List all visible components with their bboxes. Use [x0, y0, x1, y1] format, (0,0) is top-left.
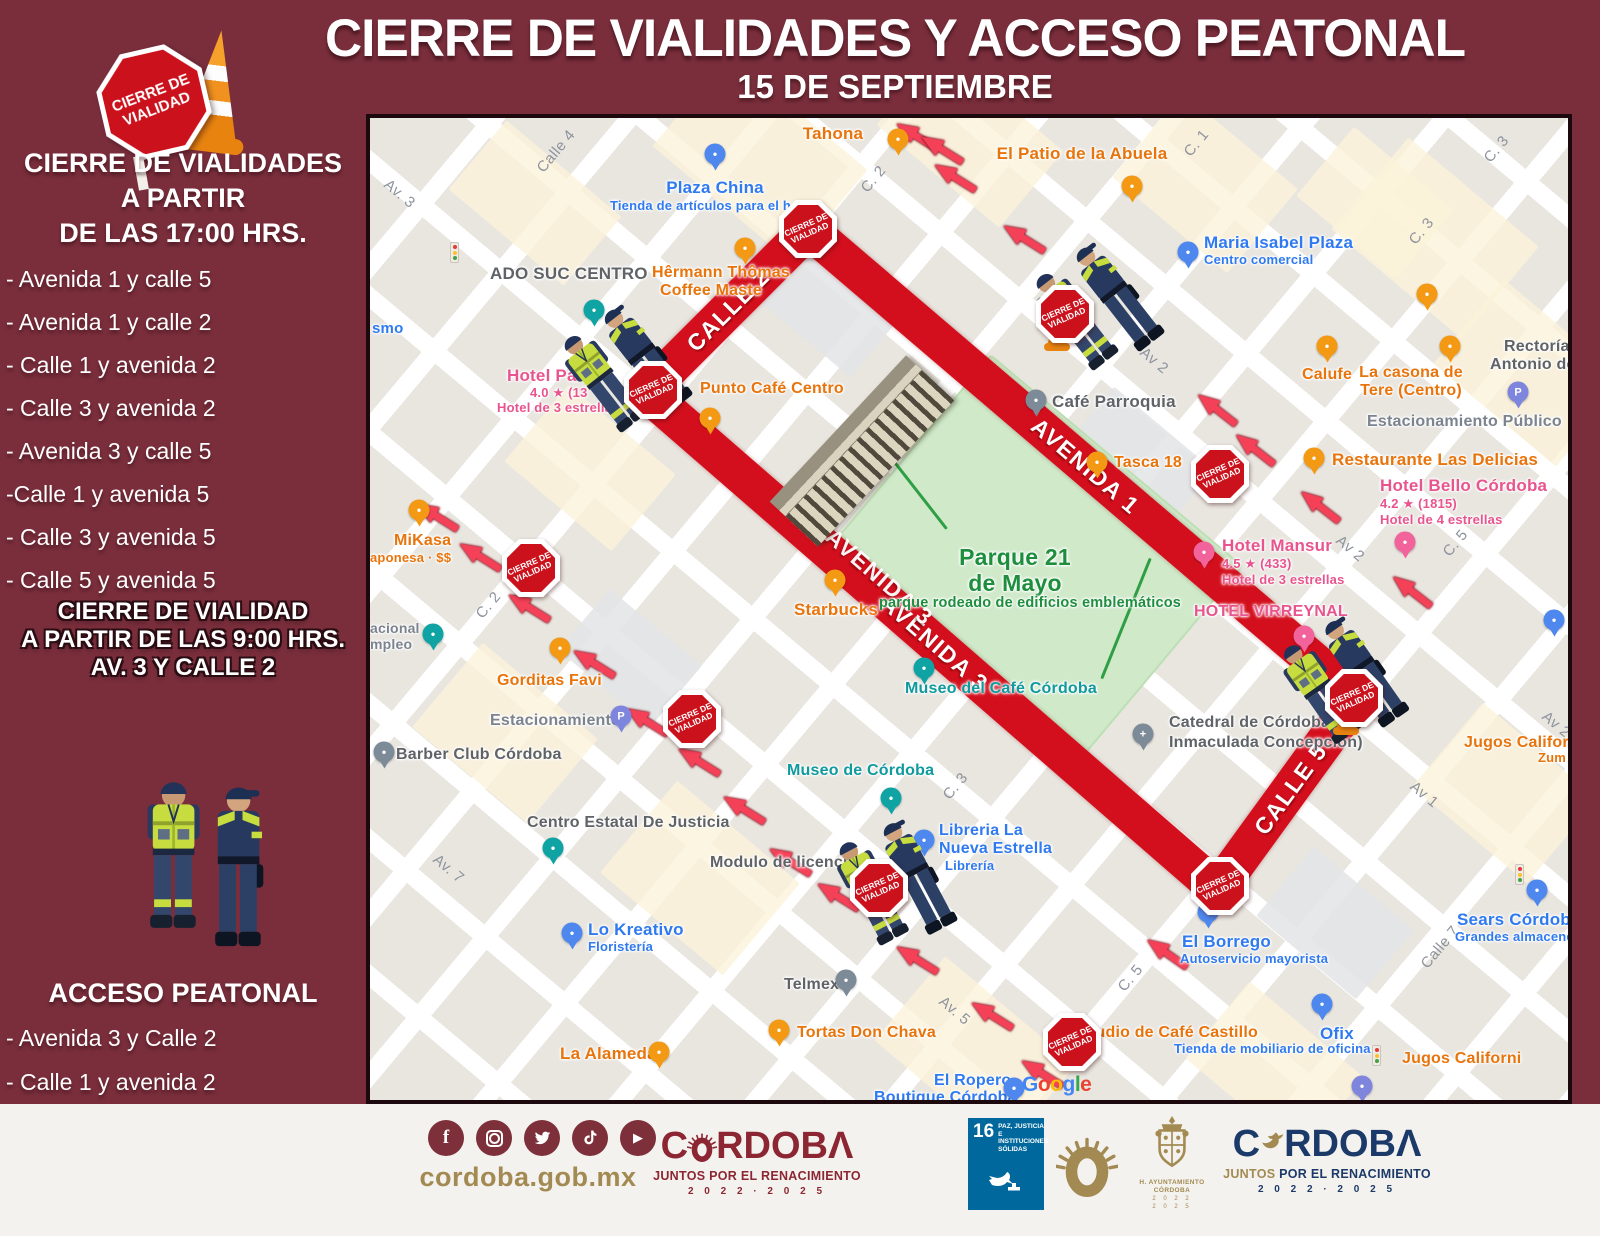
poi-label: Hotel de 3 estrellas [1222, 572, 1345, 587]
poi-label: El Borrego [1182, 932, 1271, 952]
direction-arrow-icon [1295, 484, 1345, 529]
traffic-light-icon [1515, 864, 1524, 885]
poi-label: El Ropero [934, 1072, 1011, 1090]
pedestrian-street-item: - Avenida 3 y Calle 2 [6, 1016, 360, 1060]
map-pin: ● [888, 129, 909, 150]
poi-label: Centro comercial [1204, 252, 1313, 267]
road-closure-sign: CIERRE DE VIALIDAD [663, 690, 721, 748]
poi-label: MiKasa [394, 532, 451, 550]
pin-glyph: ● [1352, 1076, 1373, 1097]
poi-label: Plaza China [666, 178, 764, 198]
road-closure-sign: CIERRE DE VIALIDAD [502, 539, 560, 597]
years: 2 0 2 2 · 2 0 2 5 [652, 1186, 862, 1197]
pin-glyph: ● [1087, 452, 1108, 473]
map-pin: ● [649, 1042, 670, 1063]
poi-label: Telmex [784, 976, 839, 994]
poi-label: Museo de Córdoba [787, 762, 934, 780]
road-closure-sign: CIERRE DE VIALIDAD [1043, 1013, 1101, 1071]
poi-label: Coffee Maste [660, 282, 762, 300]
closure-street-item: - Avenida 1 y calle 2 [6, 301, 360, 344]
pin-glyph: P [611, 706, 632, 727]
poi-label: Calufe [1302, 366, 1352, 384]
pin-glyph: ● [705, 144, 726, 165]
map-pin: P [1508, 382, 1529, 403]
map-pin: ● [562, 923, 583, 944]
map-pin: ● [769, 1020, 790, 1041]
poi-label: Rectoría d [1504, 338, 1572, 356]
poi-label: El Patio de la Abuela [997, 144, 1168, 164]
pin-glyph: + [1133, 724, 1154, 745]
sdg16-logo: 16 PAZ, JUSTICIAE INSTITUCIONESSÓLIDAS [968, 1118, 1044, 1210]
park-label: de Mayo [968, 570, 1061, 597]
facebook-icon[interactable]: f [428, 1120, 464, 1156]
sun-emblem [1056, 1116, 1118, 1212]
poi-label: acional [370, 620, 420, 636]
street-name-label: C. 2 [472, 588, 504, 622]
street-name-label: Av. 3 [381, 176, 419, 212]
road-closure-sign: CIERRE DE VIALIDAD [624, 361, 682, 419]
map-pin: ● [1178, 242, 1199, 263]
map-pin: ● [409, 500, 430, 521]
pin-glyph: ● [562, 923, 583, 944]
poi-label: Antonio de [1490, 356, 1572, 374]
cordoba-logo-maroon: CRDOBΛ JUNTOS POR EL RENACIMIENTO 2 0 2 … [652, 1126, 862, 1197]
dove-gavel-icon [985, 1159, 1027, 1199]
pin-glyph: ● [1417, 284, 1438, 305]
instagram-icon[interactable] [476, 1120, 512, 1156]
pin-glyph: ● [836, 970, 857, 991]
pin-glyph: ● [1026, 390, 1047, 411]
map-pin: ● [1304, 448, 1325, 469]
pin-glyph: ● [649, 1042, 670, 1063]
map-pin: ● [1312, 994, 1333, 1015]
map-pin: ● [1122, 176, 1143, 197]
tagline: JUNTOS POR EL RENACIMIENTO [652, 1169, 862, 1183]
direction-arrow-icon [999, 218, 1050, 260]
map-pin: ● [705, 144, 726, 165]
pin-glyph: ● [423, 624, 444, 645]
pin-glyph: ● [1317, 336, 1338, 357]
pedestrian-street-item: - Calle 1 y avenida 2 [6, 1060, 360, 1104]
closures-17-heading: CIERRE DE VIALIDADES A PARTIR DE LAS 17:… [6, 146, 360, 251]
pin-glyph: ● [888, 129, 909, 150]
cordoba-wordmark: CRDOBΛ [1212, 1124, 1442, 1164]
map-pin: ● [1194, 542, 1215, 563]
street-name-label: C. 3 [939, 769, 971, 803]
map-pin: ● [423, 624, 444, 645]
poi-label: 4.2 ★ (1815) [1380, 496, 1457, 512]
poi-label: Tortas Don Chava [797, 1024, 936, 1042]
poi-label: Nueva Estrella [939, 840, 1052, 858]
pin-glyph: ● [769, 1020, 790, 1041]
map-pin: ● [1026, 390, 1047, 411]
poi-label: Sears Córdoba [1457, 910, 1572, 930]
map-pin: ● [1087, 452, 1108, 473]
pin-glyph: ● [1544, 610, 1565, 631]
pin-glyph: ● [1194, 542, 1215, 563]
pin-glyph: ● [914, 658, 935, 679]
map-pin: ● [1417, 284, 1438, 305]
poi-label: Café Parroquia [1052, 392, 1176, 412]
map-pin: + [1133, 724, 1154, 745]
map-pin: ● [700, 408, 721, 429]
city-block [449, 120, 622, 285]
poi-label: Lo Kreativo [588, 920, 684, 940]
direction-arrow-icon [1192, 387, 1242, 432]
poi-label: Tahona [803, 124, 863, 144]
map-pin: ● [836, 970, 857, 991]
pin-glyph: ● [700, 408, 721, 429]
park-label: parque rodeado de edificios emblemáticos [879, 595, 1181, 611]
road-label: CALLE 5 [1248, 738, 1332, 840]
closure-street-item: - Calle 1 y avenida 2 [6, 344, 360, 387]
police-officers-illustration [132, 768, 288, 963]
map-pin: ● [1527, 880, 1548, 901]
map-pin: ● [1544, 610, 1565, 631]
poi-label: Hotel Bello Córdoba [1380, 476, 1547, 496]
poi-label: Libreria La [939, 822, 1023, 840]
city-block [1256, 847, 1413, 1000]
traffic-light-icon [450, 242, 459, 263]
twitter-icon[interactable] [524, 1120, 560, 1156]
city-block [412, 643, 598, 824]
poi-label: Tere (Centro) [1360, 382, 1462, 400]
poi-label: mpleo [370, 636, 412, 652]
cordoba-logo-navy: CRDOBΛ JUNTOS POR EL RENACIMIENTO 2 0 2 … [1212, 1124, 1442, 1195]
poi-label: Hotel Mansur [1222, 536, 1332, 556]
map-pin: ● [825, 570, 846, 591]
map-pin: ● [1352, 1076, 1373, 1097]
ayuntamiento-crest: H. AYUNTAMIENTOCÓRDOBA 2 0 2 2 2 0 2 5 [1134, 1116, 1210, 1211]
closure-street-item: - Calle 3 y avenida 2 [6, 387, 360, 430]
street-name-label: C. 5 [1114, 961, 1146, 995]
poi-label: Autoservicio mayorista [1180, 951, 1328, 966]
map-pin: ● [1395, 532, 1416, 553]
tiktok-icon[interactable] [572, 1120, 608, 1156]
pin-glyph: ● [735, 238, 756, 259]
pin-glyph: ● [550, 638, 571, 659]
dove-icon [1259, 1124, 1285, 1164]
pin-glyph: P [1508, 382, 1529, 403]
pin-glyph: ● [1395, 532, 1416, 553]
closure-9-heading: CIERRE DE VIALIDAD A PARTIR DE LAS 9:00 … [6, 598, 360, 682]
poi-label: Punto Café Centro [700, 380, 844, 398]
closure-street-item: - Calle 5 y avenida 5 [6, 559, 360, 602]
direction-arrow-icon [1387, 569, 1437, 614]
closure-street-item: - Avenida 1 y calle 5 [6, 258, 360, 301]
pin-glyph: ● [1122, 176, 1143, 197]
poi-label: Tasca 18 [1114, 454, 1182, 472]
poi-label: La Alameda [560, 1044, 657, 1064]
poi-label: Estacionamiento [490, 712, 621, 730]
closure-street-item: - Avenida 3 y calle 5 [6, 430, 360, 473]
poi-label: Zum [1538, 750, 1566, 765]
sun-icon [687, 1126, 717, 1166]
closures-17-list: - Avenida 1 y calle 5- Avenida 1 y calle… [6, 258, 360, 602]
years: 2 0 2 2 · 2 0 2 5 [1212, 1184, 1442, 1195]
page-subtitle: 15 DE SEPTIEMBRE [245, 68, 1545, 106]
poi-label: Estacionamiento Público [1367, 413, 1562, 431]
poster: CIERRE DE VIALIDADES Y ACCESO PEATONAL 1… [0, 0, 1600, 1236]
poi-label: Tienda de mobiliario de oficina [1174, 1041, 1371, 1056]
poi-label: Hotel de 4 estrellas [1380, 512, 1503, 527]
closure-street-item: - Calle 3 y avenida 5 [6, 516, 360, 559]
map-pin: ● [543, 838, 564, 859]
traffic-light-icon [1372, 1045, 1381, 1066]
poi-label: smo [372, 320, 403, 337]
pin-glyph: ● [409, 500, 430, 521]
poi-label: Maria Isabel Plaza [1204, 233, 1353, 253]
map-pin: ● [374, 742, 395, 763]
poi-label: Floristería [588, 939, 653, 954]
tagline: JUNTOS POR EL RENACIMIENTO [1212, 1167, 1442, 1181]
map: Google CALLE 2AVENIDA 1AVENIDA 3AVENIDA … [366, 114, 1572, 1104]
poi-label: Centro Estatal De Justicia [527, 814, 730, 832]
map-pin: ● [550, 638, 571, 659]
poi-label: Jugos Californi [1402, 1050, 1521, 1068]
map-pin: P [611, 706, 632, 727]
map-pin: ● [1440, 336, 1461, 357]
poi-label: Museo del Café Córdoba [905, 680, 1097, 698]
map-pin: ● [1317, 336, 1338, 357]
road-closure-sign: CIERRE DE VIALIDAD [850, 859, 908, 917]
poi-label: Gorditas Favi [497, 672, 602, 690]
poi-label: Boutique Córdoba [874, 1089, 1017, 1104]
map-pin: ● [735, 238, 756, 259]
pin-glyph: ● [1440, 336, 1461, 357]
sidebar: CIERRE DE VIALIDAD CIERRE DE VIALIDADES … [0, 0, 366, 1236]
map-pin: ● [914, 658, 935, 679]
poi-label: Grandes almacenes [1455, 929, 1572, 944]
pin-glyph: ● [374, 742, 395, 763]
pin-glyph: ● [825, 570, 846, 591]
pin-glyph: ● [1178, 242, 1199, 263]
pin-glyph: ● [1312, 994, 1333, 1015]
page-title: CIERRE DE VIALIDADES Y ACCESO PEATONAL [265, 8, 1526, 69]
poi-label: aponesa · $$ [370, 550, 451, 565]
coat-of-arms-icon [1151, 1116, 1193, 1174]
poi-label: Starbucks [794, 600, 878, 620]
street-name-label: Av 2 [1333, 532, 1368, 565]
street-name-label: Av. 7 [430, 851, 468, 887]
sdg16-label: PAZ, JUSTICIAE INSTITUCIONESSÓLIDAS [998, 1123, 1048, 1153]
park-label: Parque 21 [959, 544, 1071, 571]
youtube-icon[interactable]: ▶ [620, 1120, 656, 1156]
pin-glyph: ● [1527, 880, 1548, 901]
road-closure-sign: CIERRE DE VIALIDAD [1191, 445, 1249, 503]
street-name-label: C. 5 [1439, 526, 1471, 560]
street-name-label: C. 3 [1480, 132, 1512, 166]
poi-label: 4.5 ★ (433) [1222, 556, 1292, 572]
website-url[interactable]: cordoba.gob.mx [408, 1162, 648, 1193]
pin-glyph: ● [1304, 448, 1325, 469]
cordoba-wordmark: CRDOBΛ [652, 1126, 862, 1166]
footer: f ▶ cordoba.gob.mx CRDOBΛ JUNTOS POR EL … [0, 1104, 1600, 1236]
poi-label: Barber Club Córdoba [396, 746, 562, 764]
closure-street-item: -Calle 1 y avenida 5 [6, 473, 360, 516]
road-closure-sign: CIERRE DE VIALIDAD [1036, 285, 1094, 343]
road-closure-sign: CIERRE DE VIALIDAD [1191, 857, 1249, 915]
road-closure-sign: CIERRE DE VIALIDAD [1325, 669, 1383, 727]
poi-label: Restaurante Las Delicias [1332, 450, 1538, 470]
road-closure-sign: CIERRE DE VIALIDAD [779, 200, 837, 258]
pin-glyph: ● [543, 838, 564, 859]
poi-label: Hêrmann Thômas [652, 264, 790, 282]
pedestrian-access-heading: ACCESO PEATONAL [6, 978, 360, 1009]
social-icons: f ▶ [428, 1120, 656, 1156]
